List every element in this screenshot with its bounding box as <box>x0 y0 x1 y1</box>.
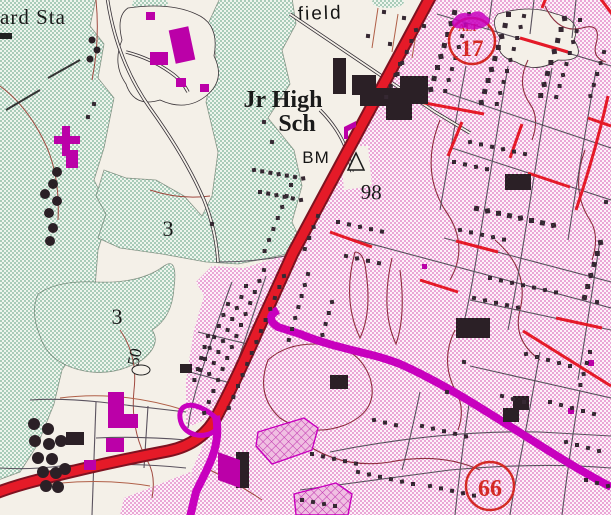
house-building <box>293 316 298 321</box>
house-building <box>388 42 392 46</box>
house-building <box>568 51 572 55</box>
house-building <box>584 478 588 482</box>
house-building <box>206 334 211 339</box>
house-building <box>344 254 349 259</box>
house-building <box>464 434 469 439</box>
house-building <box>545 71 551 77</box>
house-building <box>210 222 214 226</box>
house-building <box>207 372 212 377</box>
storage-tank <box>32 452 44 464</box>
house-building <box>588 350 592 354</box>
house-building <box>439 486 443 490</box>
house-building <box>300 498 304 502</box>
house-building <box>462 360 466 364</box>
house-building <box>284 194 289 199</box>
house-building <box>383 421 387 425</box>
house-building <box>463 162 468 167</box>
house-building <box>248 301 253 306</box>
house-building <box>220 367 225 372</box>
house-building <box>384 95 388 99</box>
building-magenta <box>84 460 96 470</box>
house-building <box>523 152 528 157</box>
house-building <box>216 378 221 383</box>
house-building <box>367 472 372 477</box>
house-building <box>336 220 340 224</box>
house-building <box>581 372 586 377</box>
building-magenta <box>146 12 155 20</box>
house-building <box>543 288 548 293</box>
house-building <box>490 145 495 150</box>
house-building <box>230 317 234 321</box>
house-building <box>480 233 485 238</box>
house-building <box>529 218 534 223</box>
house-building <box>443 89 447 93</box>
house-building <box>236 384 240 388</box>
house-building <box>276 216 280 220</box>
house-building <box>461 491 466 496</box>
house-building <box>510 281 515 286</box>
house-building <box>554 290 558 294</box>
building-black <box>180 364 192 373</box>
house-building <box>515 36 519 40</box>
house-building <box>221 339 226 344</box>
house-building <box>296 305 301 310</box>
house-building <box>217 324 221 328</box>
house-building <box>468 140 473 145</box>
house-building <box>598 61 603 66</box>
house-building <box>226 302 231 307</box>
house-building <box>257 279 262 284</box>
storage-tank <box>43 438 55 450</box>
house-building <box>262 268 267 273</box>
house-building <box>310 452 314 456</box>
house-building <box>574 29 579 34</box>
house-building <box>327 311 331 315</box>
house-building <box>485 167 489 171</box>
house-building <box>555 38 561 44</box>
topo-map: ard Sta field Jr High Sch BM 98 3 3 50 A… <box>0 0 611 515</box>
building-black <box>505 174 531 190</box>
house-building <box>207 346 212 351</box>
house-building <box>266 191 271 196</box>
house-building <box>505 69 509 73</box>
label-area-3-lower: 3 <box>112 304 123 329</box>
house-building <box>356 470 361 475</box>
house-building <box>358 225 363 230</box>
house-building <box>330 300 335 305</box>
building-magenta <box>106 438 124 452</box>
storage-tank <box>29 435 41 447</box>
house-building <box>303 283 308 288</box>
house-building <box>511 397 516 402</box>
building-black <box>333 58 346 94</box>
house-building <box>474 165 479 170</box>
house-building <box>564 62 569 67</box>
house-building <box>414 28 419 33</box>
house-building <box>235 306 240 311</box>
house-building <box>598 240 604 246</box>
house-building <box>422 24 426 28</box>
house-building <box>522 14 527 19</box>
label-school-line2: Sch <box>278 111 315 137</box>
house-building <box>507 213 513 219</box>
house-building <box>571 40 576 45</box>
house-building <box>491 235 496 240</box>
house-building <box>290 327 294 331</box>
label-school-line1: Jr High <box>244 87 323 113</box>
house-building <box>221 313 226 318</box>
house-building <box>452 160 456 164</box>
house-building <box>333 504 337 508</box>
house-building <box>512 47 517 52</box>
storage-tank <box>52 167 62 177</box>
house-building <box>538 93 543 98</box>
house-building <box>472 296 477 301</box>
house-building <box>400 479 405 484</box>
house-building <box>541 82 547 88</box>
house-building <box>540 220 546 226</box>
house-building <box>225 328 230 333</box>
house-building <box>585 361 590 366</box>
house-building <box>202 411 207 416</box>
house-building <box>568 364 572 368</box>
storage-tank <box>87 56 94 63</box>
house-building <box>289 183 293 187</box>
house-building <box>192 378 196 382</box>
house-building <box>268 307 273 312</box>
house-building <box>332 457 337 462</box>
house-building <box>592 83 597 88</box>
house-building <box>446 78 451 83</box>
house-building <box>521 283 525 287</box>
storage-tank <box>89 37 96 44</box>
house-building <box>597 449 602 454</box>
house-building <box>320 333 325 338</box>
storage-tank <box>52 481 64 493</box>
house-building <box>588 94 593 99</box>
house-building <box>478 100 484 106</box>
house-building <box>482 89 488 95</box>
house-building <box>496 211 501 216</box>
house-building <box>196 367 201 372</box>
house-building <box>263 249 267 253</box>
house-building <box>575 443 579 447</box>
house-building <box>559 27 564 32</box>
house-building <box>499 34 505 40</box>
house-building <box>212 361 217 366</box>
house-building <box>435 65 440 70</box>
label-guard-station: ard Sta <box>0 5 66 29</box>
building-magenta <box>176 78 186 87</box>
house-building <box>506 12 511 17</box>
house-building <box>274 193 279 198</box>
house-building <box>558 84 562 88</box>
house-building <box>518 25 523 30</box>
house-building <box>595 72 599 76</box>
building-black <box>456 318 490 338</box>
house-building <box>485 208 491 214</box>
storage-tank <box>48 223 58 233</box>
house-building <box>606 484 611 489</box>
storage-tank <box>28 418 40 430</box>
house-building <box>227 406 232 411</box>
house-building <box>522 400 526 404</box>
house-building <box>280 205 285 210</box>
storage-tank <box>94 47 101 54</box>
house-building <box>398 62 402 66</box>
house-building <box>389 477 394 482</box>
house-building <box>282 274 287 279</box>
house-building <box>562 16 568 22</box>
building-magenta <box>150 52 168 65</box>
storage-tank <box>46 453 58 465</box>
house-building <box>199 356 204 361</box>
house-building <box>271 227 276 232</box>
house-building <box>377 261 382 266</box>
house-building <box>254 340 259 345</box>
storage-tank <box>44 208 54 218</box>
house-building <box>588 273 594 279</box>
house-building <box>479 142 483 146</box>
house-building <box>250 351 254 355</box>
house-building <box>602 50 607 55</box>
house-building <box>322 502 327 507</box>
house-building <box>578 383 582 387</box>
house-building <box>394 423 399 428</box>
house-building <box>411 482 415 486</box>
building-black <box>330 375 348 389</box>
house-building <box>561 73 566 78</box>
house-building <box>548 400 552 404</box>
house-building <box>551 49 557 55</box>
house-building <box>230 345 235 350</box>
house-building <box>500 394 505 399</box>
house-building <box>231 395 236 400</box>
house-building <box>268 171 273 176</box>
house-building <box>207 400 212 405</box>
house-building <box>557 361 562 366</box>
house-building <box>311 500 316 505</box>
storage-tank <box>55 435 67 447</box>
house-building <box>323 322 328 327</box>
house-building <box>212 335 217 340</box>
house-building <box>559 403 564 408</box>
label-area-3-upper: 3 <box>163 216 174 241</box>
house-building <box>452 10 458 16</box>
building-black <box>66 432 84 445</box>
house-building <box>245 362 250 367</box>
house-building <box>524 352 529 357</box>
building-magenta <box>422 264 427 269</box>
house-building <box>307 236 311 240</box>
house-building <box>306 272 311 277</box>
house-building <box>438 54 444 60</box>
storage-tank <box>37 466 49 478</box>
house-building <box>264 318 268 322</box>
house-building <box>472 494 476 498</box>
house-building <box>287 338 292 343</box>
house-building <box>586 446 591 451</box>
storage-tank <box>40 189 50 199</box>
storage-tank <box>42 423 54 435</box>
route-66-number: 66 <box>478 476 502 502</box>
house-building <box>486 78 491 83</box>
house-building <box>273 296 278 301</box>
house-building <box>595 300 599 304</box>
house-building <box>372 418 377 423</box>
house-building <box>300 294 304 298</box>
house-building <box>578 18 582 22</box>
house-building <box>494 301 498 305</box>
house-building <box>431 426 436 431</box>
topo-map-canvas: ard Sta field Jr High Sch BM 98 3 3 50 A… <box>0 0 611 515</box>
house-building <box>252 168 257 173</box>
house-building <box>347 222 352 227</box>
storage-tank <box>45 236 55 246</box>
house-building <box>570 406 575 411</box>
storage-tank <box>59 463 71 475</box>
house-building <box>450 489 455 494</box>
route-17-number: 17 <box>461 36 484 61</box>
house-building <box>259 329 264 334</box>
house-building <box>291 196 296 201</box>
house-building <box>489 67 495 73</box>
house-building <box>316 214 321 219</box>
house-building <box>564 440 569 445</box>
house-building <box>355 256 360 261</box>
house-building <box>234 334 239 339</box>
house-building <box>354 461 359 466</box>
house-building <box>431 76 437 82</box>
house-building <box>546 358 551 363</box>
house-building <box>243 312 248 317</box>
house-building <box>591 262 597 268</box>
house-building <box>369 227 373 231</box>
house-building <box>253 290 257 294</box>
house-building <box>595 481 600 486</box>
house-building <box>270 140 274 144</box>
house-building <box>301 176 306 181</box>
house-building <box>380 229 385 234</box>
building-magenta <box>66 150 78 168</box>
house-building <box>502 238 506 242</box>
storage-tank <box>52 196 62 206</box>
house-building <box>321 454 326 459</box>
house-building <box>420 424 425 429</box>
house-building <box>203 357 207 361</box>
house-building <box>582 295 588 301</box>
house-building <box>518 215 524 221</box>
house-building <box>428 484 433 489</box>
house-building <box>285 174 289 178</box>
house-building <box>428 87 434 93</box>
house-building <box>595 251 600 256</box>
house-building <box>382 10 386 14</box>
building-magenta <box>588 360 594 366</box>
house-building <box>366 259 370 263</box>
house-building <box>405 50 410 55</box>
house-building <box>441 43 447 49</box>
house-building <box>240 373 245 378</box>
label-field: field <box>297 2 343 25</box>
house-building <box>499 278 504 283</box>
house-building <box>239 295 244 300</box>
house-building <box>225 356 229 360</box>
house-building <box>502 23 508 29</box>
house-building <box>474 206 480 212</box>
house-building <box>581 409 585 413</box>
house-building <box>535 355 539 359</box>
house-building <box>496 45 501 50</box>
house-building <box>508 58 513 63</box>
house-building <box>548 60 553 65</box>
house-building <box>303 247 308 252</box>
house-building <box>469 230 473 234</box>
house-building <box>92 102 96 106</box>
house-building <box>483 298 488 303</box>
house-building <box>501 147 506 152</box>
house-building <box>442 429 446 433</box>
house-building <box>211 389 215 393</box>
house-building <box>276 172 281 177</box>
house-building <box>86 115 90 119</box>
house-building <box>492 56 498 62</box>
house-building <box>267 238 272 243</box>
house-building <box>450 67 455 72</box>
house-building <box>604 200 608 204</box>
label-benchmark-elevation: 98 <box>360 180 382 205</box>
house-building <box>203 345 207 349</box>
house-building <box>389 84 394 89</box>
house-building <box>516 305 521 310</box>
house-building <box>585 284 590 289</box>
house-building <box>239 323 243 327</box>
house-building <box>393 73 398 78</box>
house-building <box>299 198 304 203</box>
house-building <box>402 16 406 20</box>
house-building <box>258 190 262 194</box>
house-building <box>592 412 597 417</box>
house-building <box>498 91 503 96</box>
house-building <box>501 80 506 85</box>
house-building <box>366 34 370 38</box>
house-building <box>551 222 557 228</box>
house-building <box>505 303 510 308</box>
building-magenta <box>200 84 209 92</box>
house-building <box>216 350 220 354</box>
house-building <box>244 284 248 288</box>
house-building <box>512 150 516 154</box>
house-building <box>488 276 492 280</box>
house-building <box>343 459 347 463</box>
house-building <box>378 475 382 479</box>
house-building <box>458 228 463 233</box>
house-building <box>260 169 264 173</box>
house-building <box>445 390 449 394</box>
edge-mark <box>0 33 12 39</box>
label-benchmark: BM <box>302 148 330 167</box>
house-building <box>453 432 458 437</box>
storage-tank <box>40 480 52 492</box>
storage-tank <box>48 179 58 189</box>
house-building <box>311 225 316 230</box>
house-building <box>495 102 499 106</box>
house-building <box>262 120 266 124</box>
house-building <box>409 39 413 43</box>
house-building <box>554 95 559 100</box>
house-building <box>532 285 537 290</box>
house-building <box>277 285 281 289</box>
